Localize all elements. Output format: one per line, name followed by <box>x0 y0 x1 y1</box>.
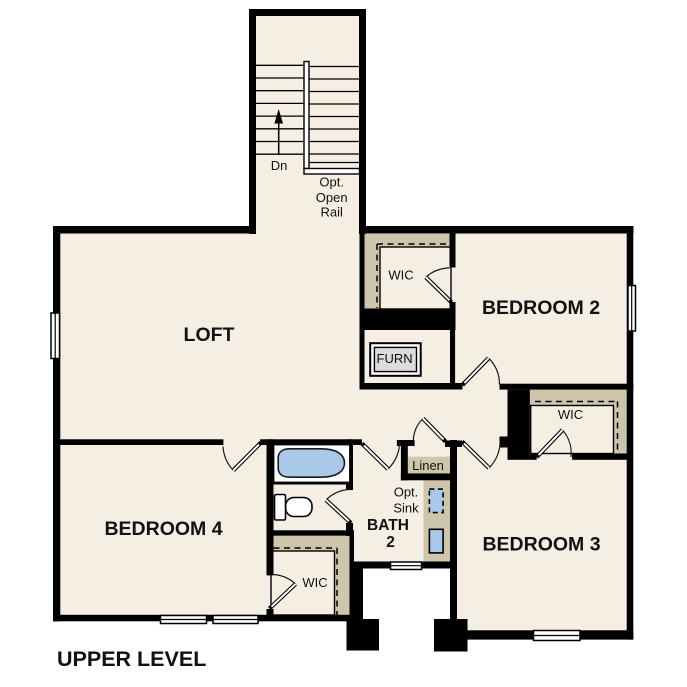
svg-text:Opt.: Opt. <box>394 485 419 500</box>
svg-text:WIC: WIC <box>558 407 583 422</box>
svg-text:WIC: WIC <box>302 575 327 590</box>
svg-text:Open: Open <box>316 190 348 205</box>
svg-text:UPPER LEVEL: UPPER LEVEL <box>57 647 206 671</box>
svg-text:WIC: WIC <box>388 268 413 283</box>
svg-text:Linen: Linen <box>412 458 444 473</box>
svg-text:Rail: Rail <box>320 205 343 220</box>
svg-text:BEDROOM 4: BEDROOM 4 <box>104 518 222 540</box>
svg-text:BATH: BATH <box>367 517 409 534</box>
svg-text:Opt.: Opt. <box>319 175 344 190</box>
svg-text:Dn: Dn <box>271 158 288 173</box>
svg-text:Sink: Sink <box>393 501 419 516</box>
svg-text:2: 2 <box>386 534 395 551</box>
svg-text:BEDROOM 2: BEDROOM 2 <box>482 297 600 319</box>
svg-text:BEDROOM 3: BEDROOM 3 <box>482 534 600 556</box>
svg-text:FURN: FURN <box>377 351 413 366</box>
svg-text:LOFT: LOFT <box>184 324 235 346</box>
